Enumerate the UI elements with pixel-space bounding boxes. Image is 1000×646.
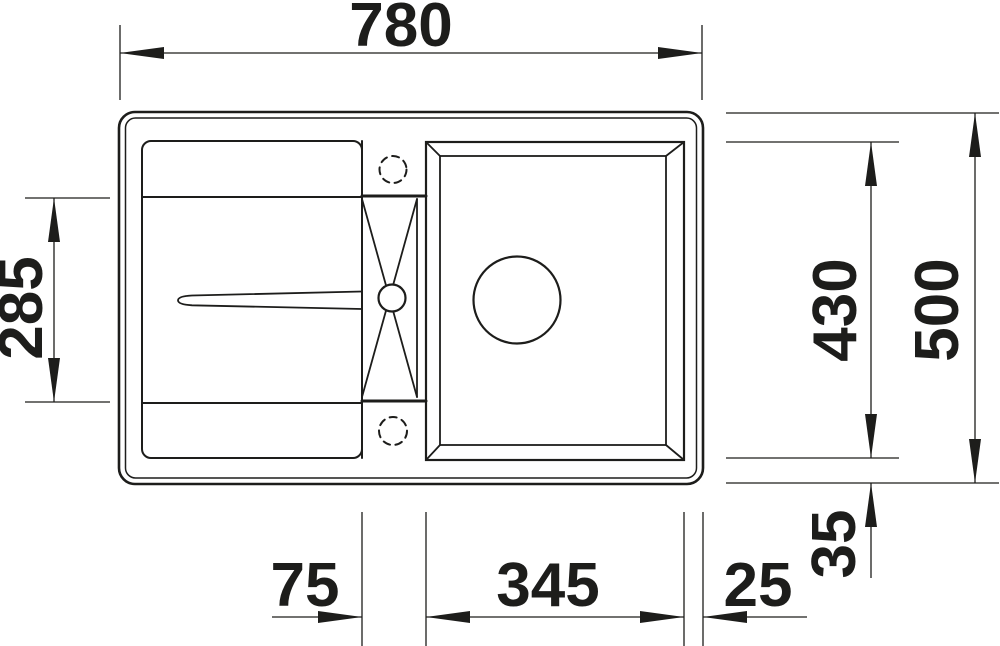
optional-tap-hole-dashed-circle-bottom (379, 417, 407, 445)
bowl-drain-circle (474, 257, 561, 344)
dim-label-500: 500 (903, 258, 972, 361)
bowl-chamfer-bottom-right (666, 445, 684, 460)
dim-label-75: 75 (271, 551, 340, 620)
dim-285-arrow-top (48, 198, 60, 242)
dim-285-arrow-bottom (48, 358, 60, 402)
bowl-chamfer-top-left (426, 142, 440, 156)
dim-label-35: 35 (800, 510, 869, 579)
dim-label-780: 780 (349, 0, 452, 60)
tap-hole-circle (379, 285, 406, 312)
dim-430-arrow-bottom (865, 414, 877, 458)
dim-500-arrow-top (969, 113, 981, 157)
dim-500-arrow-bottom (969, 439, 981, 483)
bowl-chamfer-bottom-left (426, 445, 440, 460)
dim-345-arrow-right (640, 611, 684, 623)
dim-label-25: 25 (724, 551, 793, 620)
bowl-chamfer-top-right (666, 142, 684, 156)
dim-label-345: 345 (496, 551, 599, 620)
dim-345-arrow-left (426, 611, 470, 623)
sink-dimension-drawing: 780 285 430 500 35 75 345 25 (0, 0, 1000, 646)
dim-label-285: 285 (0, 256, 56, 359)
dim-780-arrow-right (658, 47, 702, 59)
drain-groove (178, 292, 362, 310)
dim-780-arrow-left (120, 47, 164, 59)
optional-tap-hole-dashed-circle-top (380, 156, 407, 183)
bowl-outer-edge (426, 142, 684, 460)
dim-430-arrow-top (865, 142, 877, 186)
dim-label-430: 430 (801, 258, 870, 361)
